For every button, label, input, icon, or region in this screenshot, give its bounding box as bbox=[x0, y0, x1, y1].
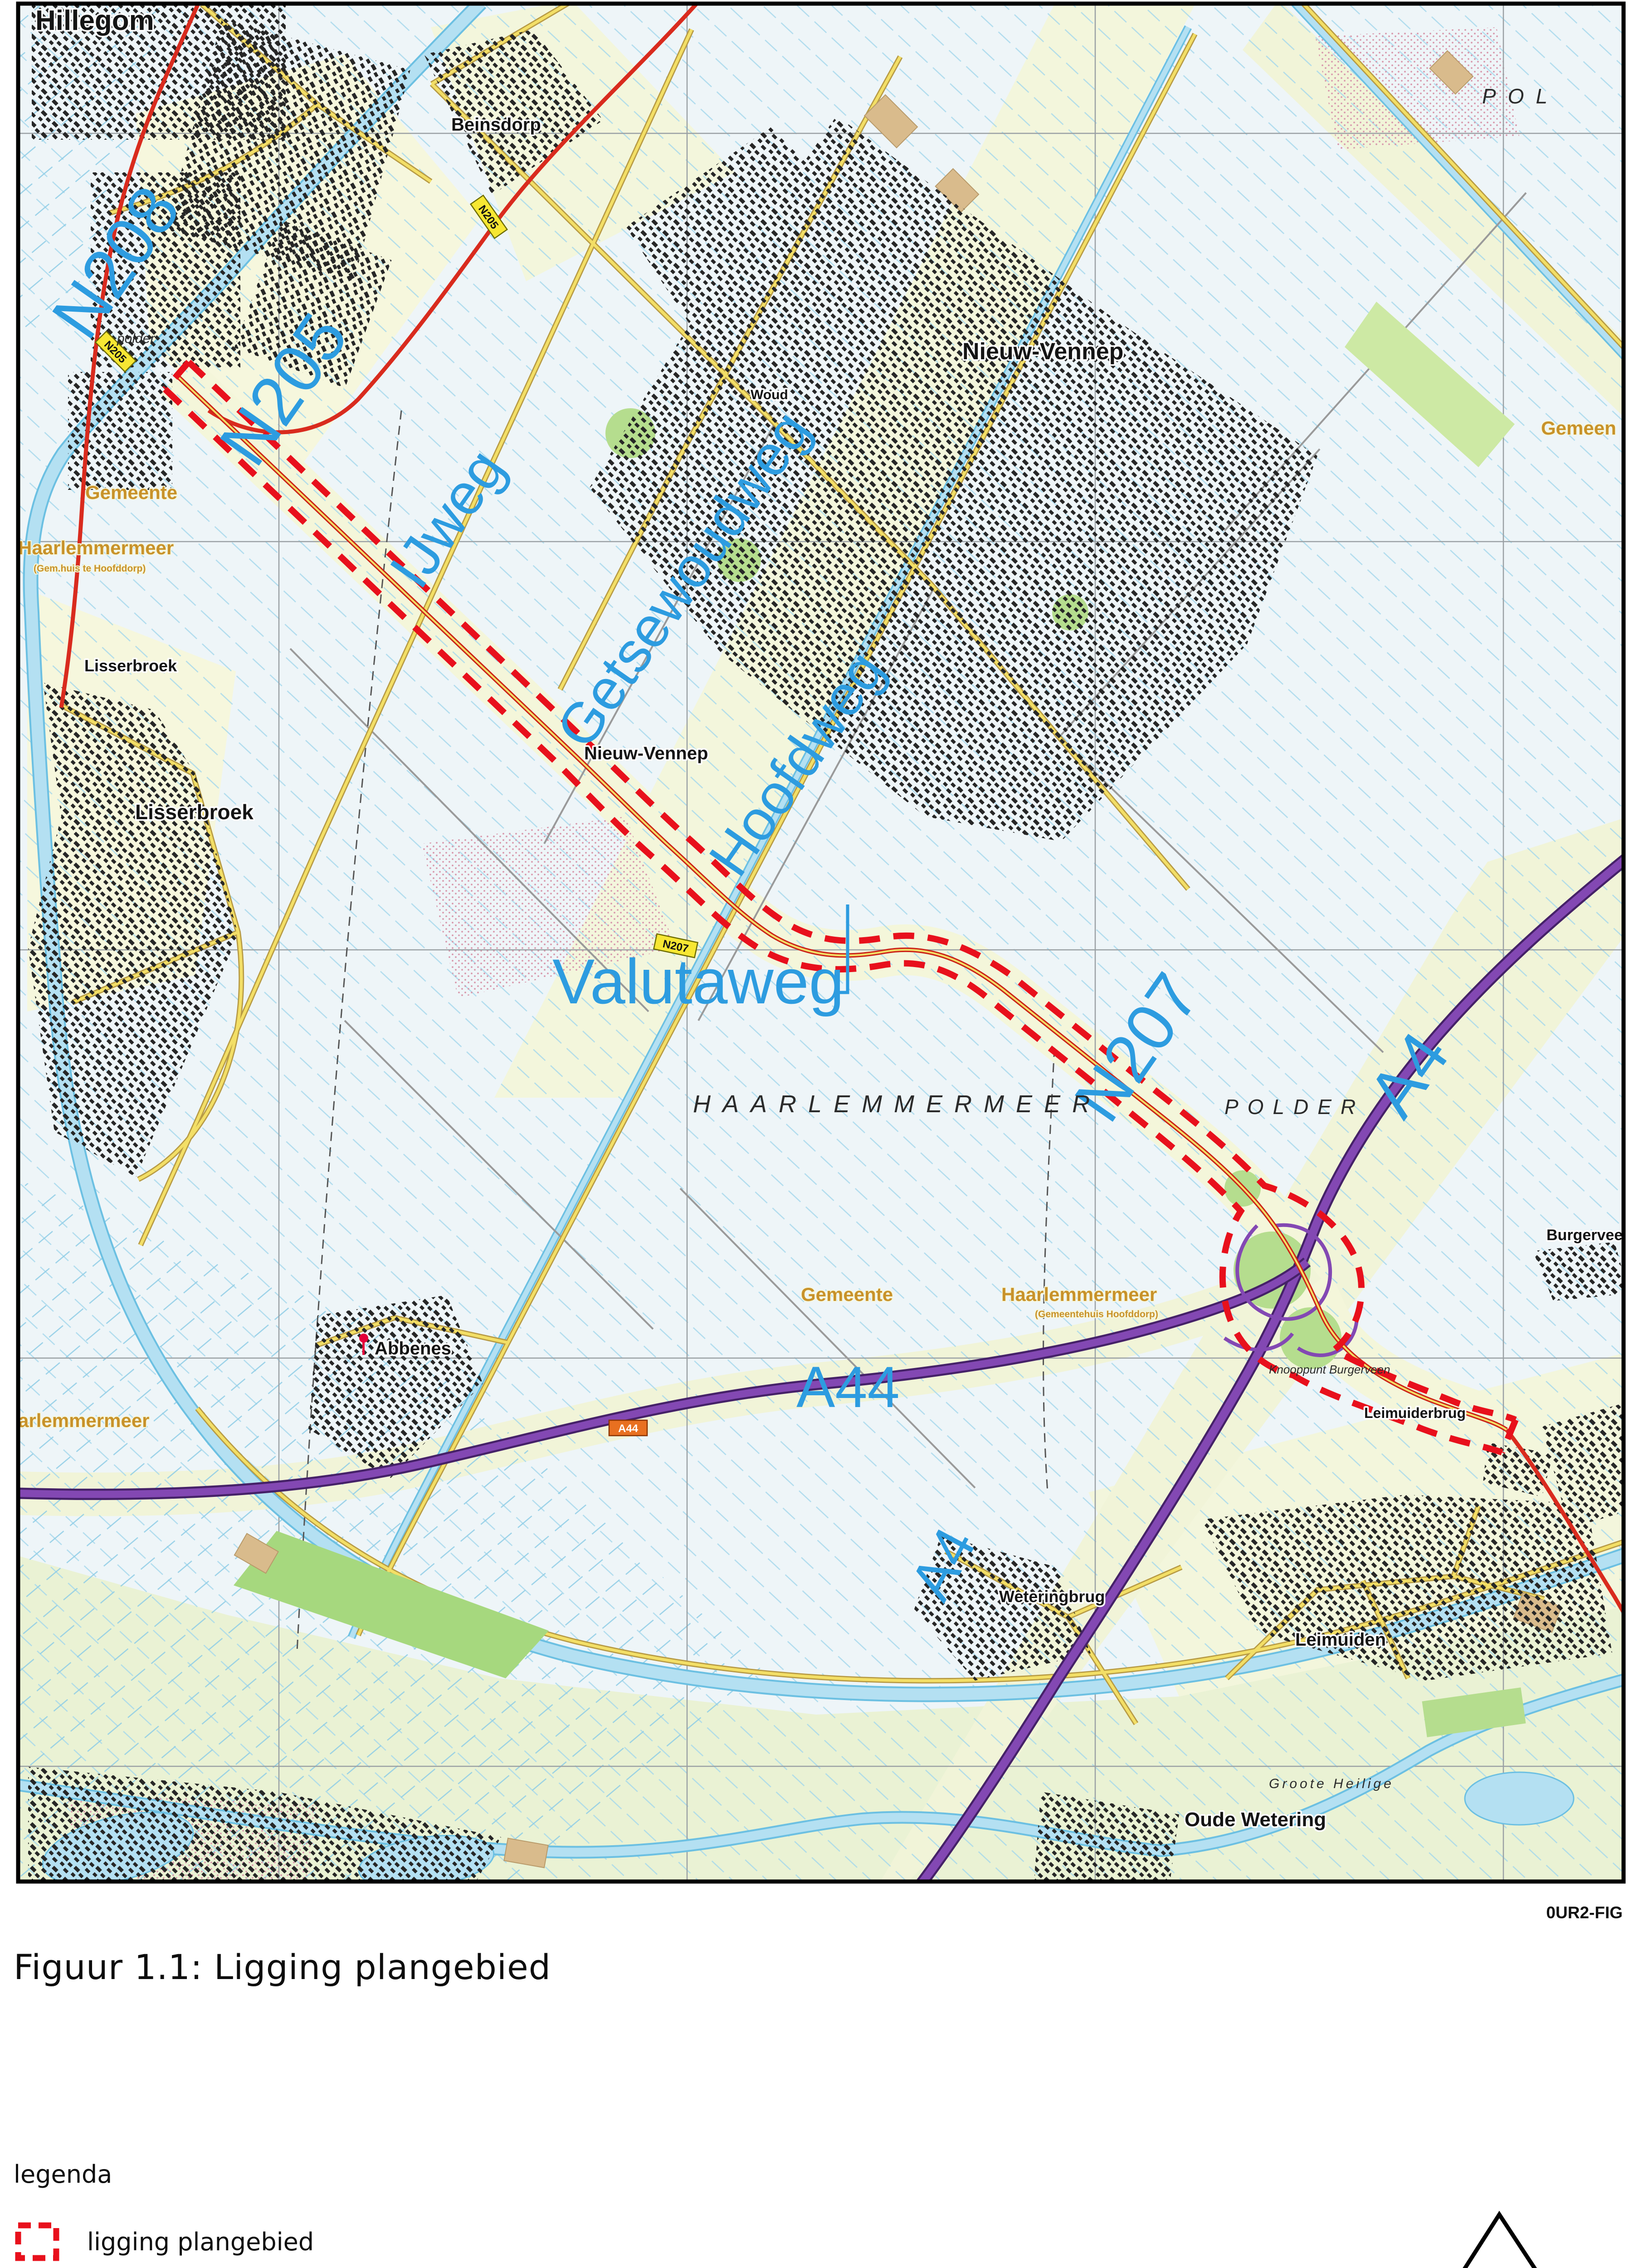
town-label-hillegom: Hillegom bbox=[35, 5, 154, 36]
municipality-east-partial: Gemeen bbox=[1541, 417, 1616, 439]
figure-page: N205 N205 N207 A44 bbox=[0, 0, 1629, 2268]
area-label-knooppunt-burgerveen: Knooppunt Burgerveen bbox=[1269, 1363, 1390, 1376]
map-sheet-code: 0UR2-FIG bbox=[1546, 1903, 1623, 1922]
legend-item-plan-area: ligging plangebied bbox=[14, 2221, 314, 2263]
town-label-leimuiden: Leimuiden bbox=[1295, 1630, 1386, 1650]
area-label-polder-small: polder bbox=[117, 331, 155, 346]
town-label-woud: Woud bbox=[751, 387, 788, 402]
area-label-groote-heilige: Groote Heilige bbox=[1269, 1776, 1394, 1791]
municipality-west-line1: Gemeente bbox=[85, 482, 177, 503]
road-label-valutaweg: Valutaweg bbox=[552, 946, 844, 1017]
town-label-burgerveen: Burgerveen bbox=[1546, 1227, 1629, 1244]
badge-a44-label: A44 bbox=[618, 1422, 639, 1435]
map-content: N205 N205 N207 A44 bbox=[18, 0, 1629, 1889]
plan-area-symbol bbox=[14, 2221, 61, 2263]
town-label-weteringbrug: Weteringbrug bbox=[999, 1587, 1105, 1606]
area-label-polder-partial: POL bbox=[1482, 84, 1559, 108]
company-logo bbox=[1428, 2208, 1577, 2268]
town-label-lisserbroek-south: Lisserbroek bbox=[135, 800, 254, 824]
municipality-west-line2: Haarlemmermeer bbox=[18, 537, 174, 558]
municipality-mid-line3: (Gemeentehuis Hoofddorp) bbox=[1035, 1309, 1158, 1320]
triangle-logo-icon bbox=[1428, 2208, 1577, 2268]
municipality-southwest-partial: arlemmermeer bbox=[18, 1410, 150, 1431]
municipality-mid-line1: Gemeente bbox=[801, 1284, 893, 1305]
area-label-haarlemmermeer: HAARLEMMERMEER bbox=[693, 1090, 1102, 1118]
town-label-abbenes: Abbenes bbox=[375, 1339, 451, 1359]
municipality-mid-line2: Haarlemmermeer bbox=[1001, 1284, 1157, 1305]
badge-a44: A44 bbox=[609, 1420, 647, 1436]
town-label-nieuw-vennep: Nieuw-Vennep bbox=[962, 338, 1123, 365]
town-label-beinsdorp: Beinsdorp bbox=[451, 115, 541, 135]
town-label-oude-wetering: Oude Wetering bbox=[1185, 1809, 1326, 1831]
municipality-west-line3: (Gem.huis te Hoofddorp) bbox=[34, 563, 146, 574]
topographic-map: N205 N205 N207 A44 bbox=[0, 0, 1629, 1889]
road-label-a44: A44 bbox=[796, 1355, 900, 1420]
red-dashed-rectangle-icon bbox=[18, 2225, 56, 2258]
legend-item-label: ligging plangebied bbox=[87, 2228, 314, 2256]
legend-title: legenda bbox=[14, 2160, 112, 2189]
town-label-nieuw-vennep-south: Nieuw-Vennep bbox=[584, 743, 708, 763]
town-label-lisserbroek-north: Lisserbroek bbox=[84, 656, 177, 675]
town-label-leimuiderbrug: Leimuiderbrug bbox=[1364, 1405, 1466, 1421]
figure-caption: Figuur 1.1: Ligging plangebied bbox=[14, 1947, 551, 1987]
area-label-polder: POLDER bbox=[1224, 1095, 1365, 1119]
